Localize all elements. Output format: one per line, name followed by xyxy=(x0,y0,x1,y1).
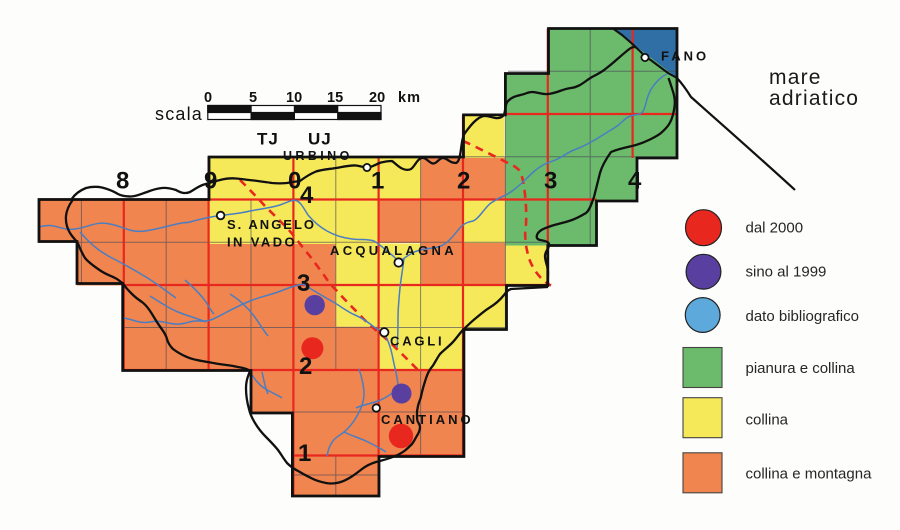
svg-text:collina: collina xyxy=(746,412,789,429)
svg-text:dal 2000: dal 2000 xyxy=(746,220,804,237)
svg-text:3: 3 xyxy=(297,270,310,297)
svg-text:FANO: FANO xyxy=(661,49,709,64)
svg-text:10: 10 xyxy=(286,90,302,106)
svg-text:1: 1 xyxy=(371,168,384,195)
svg-text:1: 1 xyxy=(298,440,311,467)
svg-text:scala: scala xyxy=(155,104,203,124)
svg-text:ACQUALAGNA: ACQUALAGNA xyxy=(330,243,457,258)
svg-text:2: 2 xyxy=(457,168,470,195)
svg-text:dato bibliografico: dato bibliografico xyxy=(746,308,859,325)
svg-text:km: km xyxy=(398,90,421,106)
svg-text:9: 9 xyxy=(204,168,217,195)
svg-text:IN VADO: IN VADO xyxy=(227,235,297,250)
svg-text:URBINO: URBINO xyxy=(283,149,353,163)
svg-text:20: 20 xyxy=(369,90,385,106)
svg-text:15: 15 xyxy=(327,90,343,106)
svg-text:S. ANGELO: S. ANGELO xyxy=(227,217,316,232)
svg-text:CAGLI: CAGLI xyxy=(390,334,444,349)
svg-text:TJ: TJ xyxy=(257,130,279,149)
svg-text:adriatico: adriatico xyxy=(769,87,859,110)
svg-text:4: 4 xyxy=(628,168,642,195)
svg-text:2: 2 xyxy=(299,353,312,380)
svg-text:UJ: UJ xyxy=(308,130,332,149)
svg-text:3: 3 xyxy=(544,168,557,195)
svg-text:collina e montagna: collina e montagna xyxy=(746,466,873,483)
svg-text:sino al 1999: sino al 1999 xyxy=(746,264,827,281)
svg-text:8: 8 xyxy=(116,168,129,195)
svg-text:0: 0 xyxy=(204,90,212,106)
svg-text:5: 5 xyxy=(249,90,257,106)
svg-text:pianura e collina: pianura e collina xyxy=(746,360,856,377)
svg-text:4: 4 xyxy=(300,182,314,209)
svg-text:CANTIANO: CANTIANO xyxy=(381,412,474,427)
svg-text:mare: mare xyxy=(769,66,822,89)
